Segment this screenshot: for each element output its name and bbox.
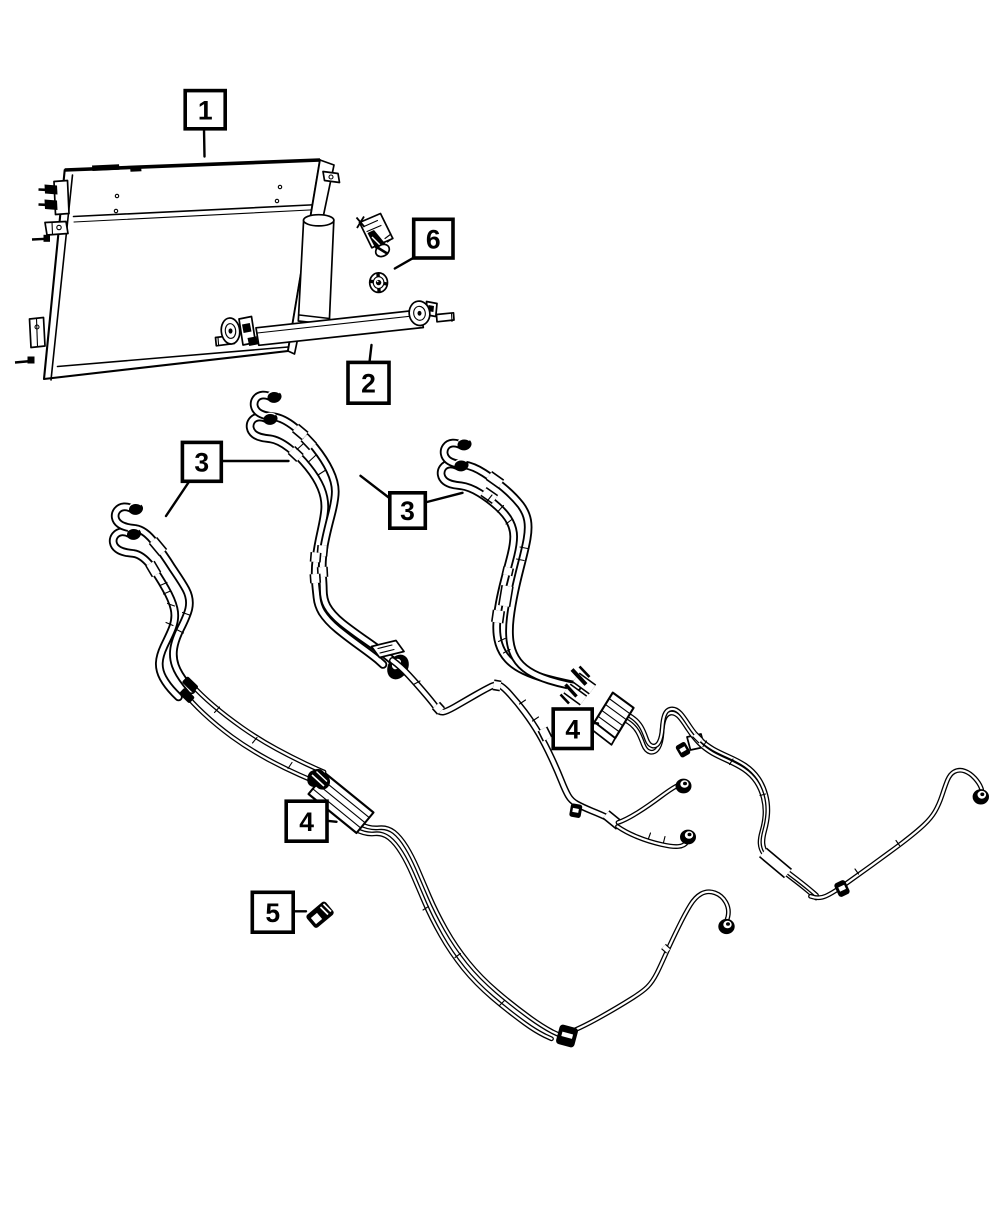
svg-text:1: 1 <box>198 95 213 125</box>
svg-text:6: 6 <box>426 224 441 254</box>
svg-text:3: 3 <box>400 496 415 526</box>
svg-text:3: 3 <box>194 448 209 478</box>
svg-text:2: 2 <box>361 369 376 399</box>
svg-text:4: 4 <box>299 807 314 837</box>
svg-text:4: 4 <box>565 714 580 744</box>
svg-text:5: 5 <box>265 898 280 928</box>
